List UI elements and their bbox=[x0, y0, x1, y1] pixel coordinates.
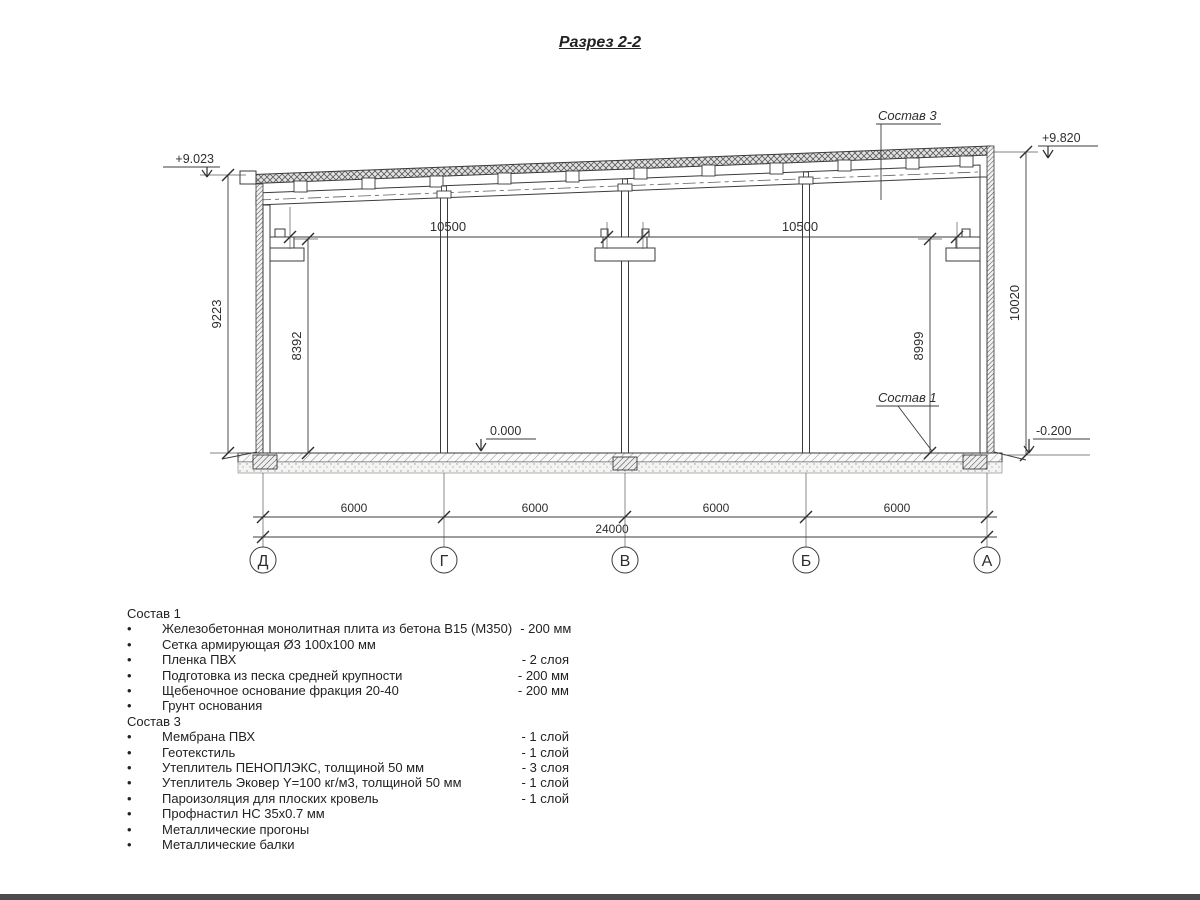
elevation-arrow-floor bbox=[476, 439, 486, 451]
column-axis-g bbox=[441, 198, 448, 453]
dim-bay-4: 6000 bbox=[884, 501, 911, 515]
elevation-top-right: +9.820 bbox=[1042, 131, 1081, 145]
callout-floor-label: Состав 1 bbox=[878, 390, 937, 405]
bullet-icon bbox=[127, 837, 162, 852]
dim-height-right-outer: 10020 bbox=[1007, 285, 1022, 321]
bullet-icon bbox=[127, 775, 162, 790]
bracket-right bbox=[946, 229, 980, 261]
axis-label-b: Б bbox=[801, 553, 812, 570]
list-item: Пленка ПВХ- 2 слоя bbox=[127, 652, 569, 667]
list-item: Профнастил НС 35х0.7 мм bbox=[127, 806, 569, 821]
dim-bay-3: 6000 bbox=[703, 501, 730, 515]
bullet-icon bbox=[127, 637, 162, 652]
list-item: Пароизоляция для плоских кровель- 1 слой bbox=[127, 791, 569, 806]
column-axis-v bbox=[622, 191, 629, 453]
list-item: Грунт основания bbox=[127, 698, 569, 713]
list-item: Подготовка из песка средней крупности- 2… bbox=[127, 668, 569, 683]
material-lists: Состав 1 Железобетонная монолитная плита… bbox=[127, 606, 569, 853]
foundation-left bbox=[253, 455, 277, 469]
bullet-icon bbox=[127, 745, 162, 760]
bullet-icon bbox=[127, 683, 162, 698]
list-item: Сетка армирующая Ø3 100х100 мм bbox=[127, 637, 569, 652]
bullet-icon bbox=[127, 668, 162, 683]
dim-height-left-outer: 9223 bbox=[209, 300, 224, 329]
list-item: Мембрана ПВХ- 1 слой bbox=[127, 729, 569, 744]
elevation-top-left: +9.023 bbox=[175, 152, 214, 166]
callout-floor-leader bbox=[898, 406, 932, 451]
elevation-arrow-top-left bbox=[202, 167, 212, 177]
elevation-arrow-top-right bbox=[1043, 146, 1053, 158]
bullet-icon bbox=[127, 791, 162, 806]
roof-left-cap bbox=[240, 171, 256, 184]
extension-lines bbox=[200, 152, 1090, 547]
list-item: Щебеночное основание фракция 20-40- 200 … bbox=[127, 683, 569, 698]
list-item: Утеплитель ПЕНОПЛЭКС, толщиной 50 мм- 3 … bbox=[127, 760, 569, 775]
axis-label-g: Г bbox=[440, 553, 449, 570]
bullet-icon bbox=[127, 621, 162, 636]
dim-bay-1: 6000 bbox=[341, 501, 368, 515]
roof-assembly bbox=[240, 146, 990, 205]
axis-bubbles: Д Г В Б А bbox=[250, 547, 1000, 573]
axis-label-a: А bbox=[982, 553, 993, 570]
sostav3-heading: Состав 3 bbox=[127, 714, 569, 729]
bracket-left bbox=[270, 229, 304, 261]
list-item: Утеплитель Эковер Y=100 кг/м3, толщиной … bbox=[127, 775, 569, 790]
elevation-floor: 0.000 bbox=[490, 424, 521, 438]
section-drawing: 10500 10500 9223 8392 8999 10020 6000 60… bbox=[0, 0, 1200, 600]
dim-span-right: 10500 bbox=[782, 219, 818, 234]
wall-left bbox=[256, 184, 263, 453]
bullet-icon bbox=[127, 698, 162, 713]
floor-slab bbox=[222, 452, 1026, 473]
foundation-right bbox=[963, 455, 987, 469]
column-axis-a bbox=[980, 177, 987, 453]
foundation-middle bbox=[613, 457, 637, 470]
dim-height-right-inner: 8999 bbox=[911, 332, 926, 361]
sostav1-heading: Состав 1 bbox=[127, 606, 569, 621]
dim-bay-2: 6000 bbox=[522, 501, 549, 515]
elevation-arrow-ground-right bbox=[1024, 439, 1034, 453]
axis-label-d: Д bbox=[258, 553, 269, 570]
elevation-ground-right: -0.200 bbox=[1036, 424, 1071, 438]
list-item: Металлические прогоны bbox=[127, 822, 569, 837]
list-item: Металлические балки bbox=[127, 837, 569, 852]
list-item: Геотекстиль- 1 слой bbox=[127, 745, 569, 760]
column-axis-d bbox=[263, 205, 270, 453]
wall-right bbox=[987, 146, 994, 453]
bullet-icon bbox=[127, 806, 162, 821]
dim-height-left-inner: 8392 bbox=[289, 332, 304, 361]
bullet-icon bbox=[127, 760, 162, 775]
bottom-edge-bar bbox=[0, 894, 1200, 900]
callout-roof-label: Состав 3 bbox=[878, 108, 937, 123]
dim-span-left: 10500 bbox=[430, 219, 466, 234]
list-item: Железобетонная монолитная плита из бетон… bbox=[127, 621, 569, 636]
bullet-icon bbox=[127, 729, 162, 744]
axis-label-v: В bbox=[620, 553, 631, 570]
bullet-icon bbox=[127, 822, 162, 837]
drawing-sheet: Разрез 2-2 bbox=[0, 0, 1200, 900]
dim-total: 24000 bbox=[595, 522, 629, 536]
bullet-icon bbox=[127, 652, 162, 667]
